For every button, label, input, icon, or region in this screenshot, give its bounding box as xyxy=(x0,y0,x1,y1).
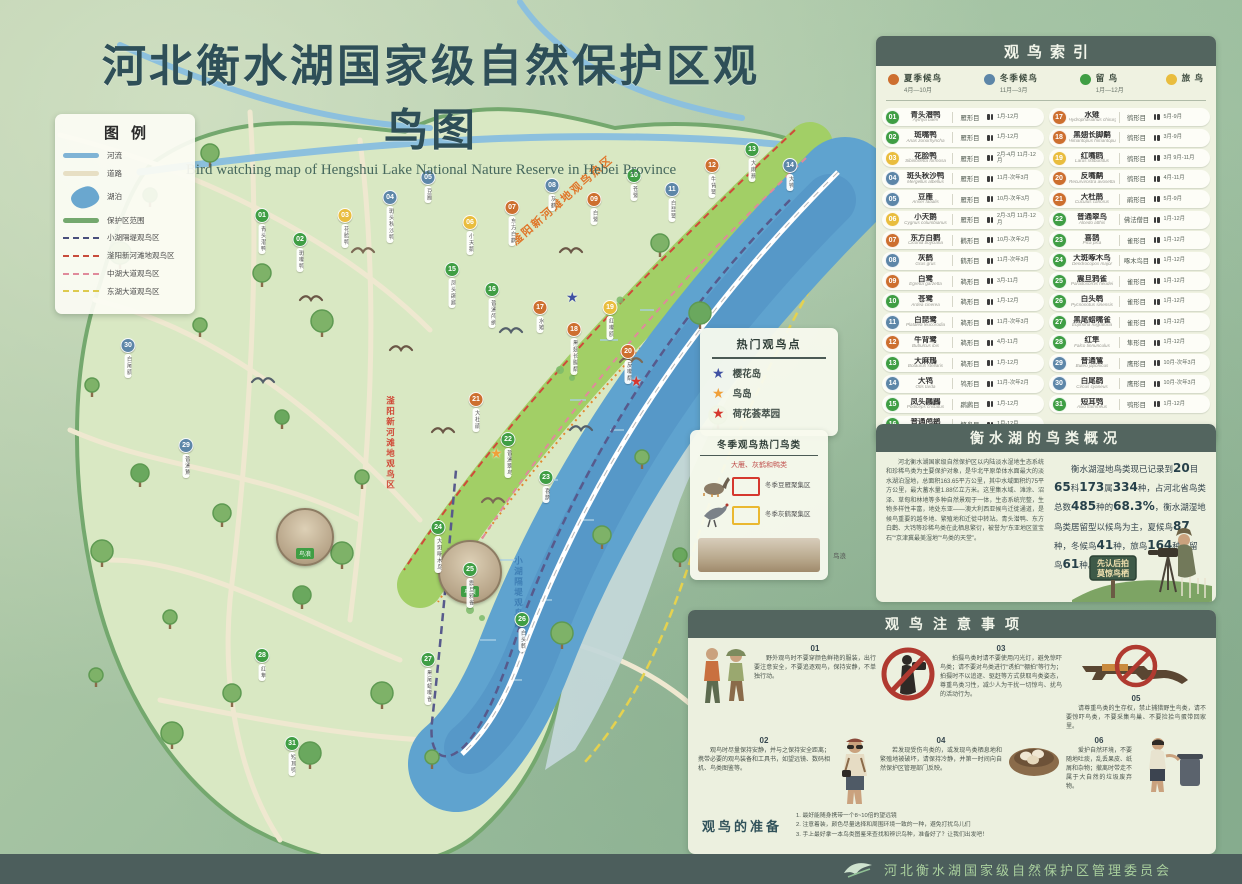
bird-index-row: 19红嘴鸥Larus ridibundus鸻形目3月 9月-11月 xyxy=(1049,149,1211,167)
crane-icon xyxy=(698,502,732,528)
bird-order: 鸻形目 xyxy=(1123,154,1151,163)
bird-months: 1月-12月 xyxy=(997,298,1041,304)
note-number: 05 xyxy=(1066,694,1206,703)
binoculars-icon xyxy=(1152,340,1162,346)
bird-months: 11月-次年3月 xyxy=(997,175,1041,181)
season-text: 留 鸟1月—12月 xyxy=(1096,72,1124,94)
binoculars-icon xyxy=(1152,381,1162,387)
season-label: 旅 鸟 xyxy=(1182,72,1204,84)
legend-line-swatch xyxy=(63,171,99,176)
binoculars-icon xyxy=(1152,299,1162,305)
hotspot-label: 荷花荟萃园 xyxy=(733,406,781,420)
winter-zone-item: 冬季灰鹤聚集区 xyxy=(698,502,820,528)
bird-name-latin: Anser fabalis xyxy=(902,200,949,205)
notes-card: 观鸟注意事项 01 野外观鸟时不要穿颜色鲜艳的服装，出行要注意安全，不要追逐观鸟… xyxy=(688,610,1216,854)
binoculars-icon xyxy=(985,360,995,366)
bird-order: 鸻形目 xyxy=(1123,133,1151,142)
bird-names: 红隼Falco tinnunculus xyxy=(1069,336,1116,348)
legend-dash-swatch xyxy=(63,290,99,292)
legend-label: 小湖隔堤观鸟区 xyxy=(107,233,160,243)
stat-number: 65 xyxy=(1054,480,1071,494)
litter-cleanup-illustration xyxy=(1136,736,1206,794)
note-item: 04 若发现受伤鸟类的，或发现鸟类栖息地和繁殖地被破坏，请保持冷静，并第一时间向… xyxy=(880,736,1062,808)
divider xyxy=(952,378,953,389)
stat-number: 334 xyxy=(1113,480,1138,494)
sign-line-2: 莫惊鸟栖 xyxy=(1096,568,1129,578)
bird-order: 鹈形目 xyxy=(956,297,984,306)
bird-number-badge: 05 xyxy=(885,192,900,207)
note-paragraph: 野外观鸟时不要穿颜色鲜艳的服装，出行要注意安全，不要追逐观鸟，保持安静，不单独行… xyxy=(754,655,876,682)
winter-zone-item: 冬季豆雁聚集区 xyxy=(698,475,820,497)
legend-dash-swatch xyxy=(63,273,99,275)
bird-name-latin: Circus cyaneus xyxy=(1069,385,1116,390)
bird-index-row: 10苍鹭Ardea cinerea鹈形目1月-12月 xyxy=(882,293,1044,311)
legend-dash-swatch xyxy=(63,237,99,239)
season-legend-item: 夏季候鸟4月—10月 xyxy=(888,72,942,94)
bird-months: 10月-次年3月 xyxy=(997,196,1041,202)
bird-name-latin: Ciconia boyciana xyxy=(902,241,949,246)
legend-item: 河流 xyxy=(63,151,187,161)
bird-order: 鹰形目 xyxy=(1123,359,1151,368)
prep-line: 1. 最好能随身携带一个8~10倍的望远镜 xyxy=(796,812,988,821)
legend-label: 湖泊 xyxy=(107,192,122,202)
binoculars-icon xyxy=(1152,155,1162,161)
binoculars-icon xyxy=(1152,319,1162,325)
bird-names: 短耳鸮Asio flammeus xyxy=(1069,398,1116,410)
bird-name-latin: Paradoxornis heudei xyxy=(1069,282,1116,287)
bird-index-column-left: 01青头潜鸭Aythya baeri雁形目1月-12月02斑嘴鸭Anas zon… xyxy=(882,108,1044,434)
overview-title: 衡水湖的鸟类概况 xyxy=(876,424,1216,452)
legend-label: 保护区范围 xyxy=(107,216,145,226)
note-number: 04 xyxy=(880,736,1002,745)
note-number: 03 xyxy=(940,644,1062,653)
divider xyxy=(952,317,953,328)
binoculars-icon xyxy=(1152,176,1162,182)
bird-months: 3月-11月 xyxy=(997,278,1041,284)
note-paragraph: 拍摄鸟类时请不要使用闪光灯，避免惊吓鸟类；请不要对鸟类进行“诱拍”“棚拍”等行为… xyxy=(940,655,1062,700)
bird-name-latin: Recurvirostra avosetta xyxy=(1069,180,1116,185)
binoculars-icon xyxy=(985,176,995,182)
legend-item: 中湖大道观鸟区 xyxy=(63,269,187,279)
legend-rows: 河流道路湖泊保护区范围小湖隔堤观鸟区滏阳新河滩地观鸟区中湖大道观鸟区东湖大道观鸟… xyxy=(63,151,187,296)
bird-names: 白尾鹞Circus cyaneus xyxy=(1069,377,1116,389)
bird-number-badge: 28 xyxy=(1052,335,1067,350)
bird-index-row: 04斑头秋沙鸭Mergellus albellus雁形目11月-次年3月 xyxy=(882,170,1044,188)
stat-text: 科 xyxy=(1071,483,1080,493)
legend-label: 滏阳新河滩地观鸟区 xyxy=(107,251,175,261)
bird-number-badge: 18 xyxy=(1052,130,1067,145)
note-item: 01 野外观鸟时不要穿颜色鲜艳的服装，出行要注意安全，不要追逐观鸟，保持安静，不… xyxy=(698,644,876,732)
bird-order: 鹈形目 xyxy=(956,318,984,327)
bird-index-row: 28红隼Falco tinnunculus隼形目1月-12月 xyxy=(1049,334,1211,352)
divider xyxy=(952,358,953,369)
bird-name-latin: Himantopus himantopus xyxy=(1069,139,1116,144)
hotspots-title: 热门观鸟点 xyxy=(710,336,828,352)
binoculars-icon xyxy=(985,258,995,264)
divider xyxy=(1119,337,1120,348)
bird-order: 鸻形目 xyxy=(1123,113,1151,122)
bird-index-row: 12牛背鹭Bubulcus ibis鹈形目4月-11月 xyxy=(882,334,1044,352)
bird-name-latin: Mergellus albellus xyxy=(902,180,949,185)
bird-months: 1月-12月 xyxy=(1164,298,1208,304)
zone-swatch xyxy=(732,506,760,525)
bird-name-latin: Alcedo atthis xyxy=(1069,221,1116,226)
bird-index-row: 01青头潜鸭Aythya baeri雁形目1月-12月 xyxy=(882,108,1044,126)
winter-subtitle: 大雁、灰鹤和鸭类 xyxy=(698,460,820,470)
bird-index-row: 30白尾鹞Circus cyaneus鹰形目10月-次年3月 xyxy=(1049,375,1211,393)
legend-line-swatch xyxy=(63,218,99,223)
bird-months: 1月-12月 xyxy=(1164,401,1208,407)
bird-names: 黑翅长脚鹬Himantopus himantopus xyxy=(1069,131,1116,143)
divider xyxy=(712,357,826,359)
bird-index-row: 27黑尾蜡嘴雀Eophona migratoria雀形目1月-12月 xyxy=(1049,313,1211,331)
bird-number-badge: 09 xyxy=(885,274,900,289)
bird-order: 鹈形目 xyxy=(956,359,984,368)
legend-line-swatch xyxy=(63,153,99,158)
bird-months: 1月-12月 xyxy=(997,360,1041,366)
bird-number-badge: 14 xyxy=(885,376,900,391)
divider xyxy=(952,399,953,410)
bird-number-badge: 30 xyxy=(1052,376,1067,391)
bird-index-row: 21大杜鹃Cuculus canorus鹃形目5月-9月 xyxy=(1049,190,1211,208)
binoculars-icon xyxy=(1152,135,1162,141)
season-text: 旅 鸟 xyxy=(1182,72,1204,85)
legend-blob-swatch xyxy=(69,183,101,210)
binoculars-icon xyxy=(985,340,995,346)
divider xyxy=(1119,235,1120,246)
divider xyxy=(1119,378,1120,389)
bird-index-list: 01青头潜鸭Aythya baeri雁形目1月-12月02斑嘴鸭Anas zon… xyxy=(876,103,1216,442)
note-number: 01 xyxy=(754,644,876,653)
legend-title: 图例 xyxy=(63,122,187,143)
legend-item: 小湖隔堤观鸟区 xyxy=(63,233,187,243)
bird-name-latin: Sibirionetta formosa xyxy=(902,159,949,164)
bird-names: 大杜鹃Cuculus canorus xyxy=(1069,193,1116,205)
binoculars-icon xyxy=(985,237,995,243)
bird-name-latin: Pica pica xyxy=(1069,241,1116,246)
footer-organization: 河北衡水湖国家级自然保护区管理委员会 xyxy=(884,860,1172,879)
prep-row: 观鸟的准备 1. 最好能随身携带一个8~10倍的望远镜2. 注意着装，颜色尽量选… xyxy=(688,808,1216,840)
divider xyxy=(1119,358,1120,369)
bird-months: 11月-次年3月 xyxy=(997,319,1041,325)
season-text: 冬季候鸟11月—3月 xyxy=(1000,72,1038,94)
photographer-illustration: 先认后拍 莫惊鸟栖 xyxy=(1072,504,1212,602)
bird-order: 鹳形目 xyxy=(956,236,984,245)
notes-title: 观鸟注意事项 xyxy=(688,610,1216,638)
star-icon: ★ xyxy=(712,386,725,400)
note-paragraph: 爱护自然环境，不要随地吐痰，乱丢果皮、纸屑和杂物；撤离时带走不属于大自然的垃圾废… xyxy=(1066,747,1132,792)
bird-index-row: 29普通鵟Buteo japonicus鹰形目10月-次年3月 xyxy=(1049,354,1211,372)
bird-index-row: 31短耳鸮Asio flammeus鸮形目1月-12月 xyxy=(1049,395,1211,413)
bird-names: 大麻鳽Botaurus stellaris xyxy=(902,357,949,369)
bird-names: 反嘴鹬Recurvirostra avosetta xyxy=(1069,172,1116,184)
bird-number-badge: 04 xyxy=(885,171,900,186)
bird-order: 隼形目 xyxy=(1123,338,1151,347)
bird-name-latin: Eophona migratoria xyxy=(1069,323,1116,328)
season-label: 留 鸟 xyxy=(1096,72,1124,84)
bird-names: 大鸨Otis tarda xyxy=(902,377,949,389)
photographer-head xyxy=(1178,534,1190,546)
hotspot-label: 鸟岛 xyxy=(733,386,752,400)
birdwatcher-kid-illustration xyxy=(834,736,876,808)
bird-name-latin: Podiceps cristatus xyxy=(902,405,949,410)
bird-order: 䴙䴘目 xyxy=(956,400,984,409)
divider xyxy=(952,255,953,266)
binoculars-icon xyxy=(985,381,995,387)
bird-number-badge: 24 xyxy=(1052,253,1067,268)
bird-names: 水雉Hydrophasianus chirurgus xyxy=(1069,111,1116,123)
bird-months: 1月-12月 xyxy=(1164,216,1208,222)
bird-number-badge: 11 xyxy=(885,315,900,330)
bird-order: 雀形目 xyxy=(1123,277,1151,286)
bird-number-badge: 02 xyxy=(885,130,900,145)
bird-order: 雁形目 xyxy=(956,154,984,163)
divider xyxy=(1119,112,1120,123)
bird-names: 牛背鹭Bubulcus ibis xyxy=(902,336,949,348)
bird-order: 雁形目 xyxy=(956,215,984,224)
bird-names: 黑尾蜡嘴雀Eophona migratoria xyxy=(1069,316,1116,328)
star-icon: ★ xyxy=(712,406,725,420)
divider xyxy=(1119,255,1120,266)
legend-label: 中湖大道观鸟区 xyxy=(107,269,160,279)
stat-text: 属 xyxy=(1104,483,1113,493)
legend-item: 东湖大道观鸟区 xyxy=(63,287,187,297)
reserve-logo-icon xyxy=(842,859,874,879)
footer: 河北衡水湖国家级自然保护区管理委员会 xyxy=(0,854,1242,884)
bird-order: 雁形目 xyxy=(956,195,984,204)
bird-index-row: 02斑嘴鸭Anas zonorhyncha雁形目1月-12月 xyxy=(882,129,1044,147)
bird-index-row: 13大麻鳽Botaurus stellaris鹈形目1月-12月 xyxy=(882,354,1044,372)
binoculars-icon xyxy=(985,319,995,325)
note-number: 06 xyxy=(1066,736,1132,745)
note-item: 06 爱护自然环境，不要随地吐痰，乱丢果皮、纸屑和杂物；撤离时带走不属于大自然的… xyxy=(1066,736,1206,808)
bird-names: 花脸鸭Sibirionetta formosa xyxy=(902,152,949,164)
bird-name-latin: Otis tarda xyxy=(902,385,949,390)
season-months: 1月—12月 xyxy=(1096,85,1124,94)
bird-names: 白鹭Egretta garzetta xyxy=(902,275,949,287)
bird-months: 1月-12月 xyxy=(997,134,1041,140)
bird-number-badge: 20 xyxy=(1052,171,1067,186)
bird-order: 雀形目 xyxy=(1123,318,1151,327)
divider xyxy=(1119,296,1120,307)
binoculars-icon xyxy=(985,155,995,161)
bird-order: 鹤形目 xyxy=(956,256,984,265)
season-dot xyxy=(888,74,899,85)
hotspot-item: ★樱花岛 xyxy=(712,366,826,380)
season-dot xyxy=(1080,74,1091,85)
bird-names: 大斑啄木鸟Dendrocopos major xyxy=(1069,254,1116,266)
bird-index-row: 03花脸鸭Sibirionetta formosa雁形目2月-4月 11月-12… xyxy=(882,149,1044,167)
prep-lines: 1. 最好能随身携带一个8~10倍的望远镜2. 注意着装，颜色尽量选择和周围环境… xyxy=(796,812,988,840)
bird-months: 1月-12月 xyxy=(997,114,1041,120)
bird-index-row: 08灰鹤Grus grus鹤形目11月-次年3月 xyxy=(882,252,1044,270)
legend-dash-swatch xyxy=(63,255,99,257)
bird-number-badge: 12 xyxy=(885,335,900,350)
legend-item: 保护区范围 xyxy=(63,216,187,226)
bird-name-latin: Egretta garzetta xyxy=(902,282,949,287)
bird-wave-photo-row: 鸟浪 xyxy=(698,533,820,572)
prep-title: 观鸟的准备 xyxy=(702,816,782,835)
bird-wave-thumbnail: 鸟浪 xyxy=(698,538,820,572)
bird-index-row: 24大斑啄木鸟Dendrocopos major啄木鸟目1月-12月 xyxy=(1049,252,1211,270)
binoculars-icon xyxy=(1152,258,1162,264)
season-dot xyxy=(984,74,995,85)
divider xyxy=(952,337,953,348)
bird-index-row: 15凤头鸊鷉Podiceps cristatus䴙䴘目1月-12月 xyxy=(882,395,1044,413)
season-legend-item: 留 鸟1月—12月 xyxy=(1080,72,1124,94)
bird-name-latin: Bubulcus ibis xyxy=(902,344,949,349)
bird-order: 鹃形目 xyxy=(1123,195,1151,204)
bird-names: 东方白鹳Ciconia boyciana xyxy=(902,234,949,246)
divider xyxy=(1119,153,1120,164)
prep-line: 3. 手上最好拿一本鸟类图鉴来查找和辨识鸟种，准备好了？让我们出发吧！ xyxy=(796,831,988,840)
bird-index-row: 09白鹭Egretta garzetta鹈形目3月-11月 xyxy=(882,272,1044,290)
bird-index-title: 观鸟索引 xyxy=(876,36,1216,66)
bird-number-badge: 19 xyxy=(1052,151,1067,166)
bird-name-latin: Asio flammeus xyxy=(1069,405,1116,410)
hotspot-item: ★荷花荟萃园 xyxy=(712,406,826,420)
binoculars-icon xyxy=(1152,278,1162,284)
bird-index-row: 14大鸨Otis tarda鸨形目11月-次年2月 xyxy=(882,375,1044,393)
bird-number-badge: 06 xyxy=(885,212,900,227)
divider xyxy=(1119,317,1120,328)
bird-number-badge: 31 xyxy=(1052,397,1067,412)
bird-names: 斑头秋沙鸭Mergellus albellus xyxy=(902,172,949,184)
bird-name-latin: Cygnus columbianus xyxy=(902,221,949,226)
binoculars-icon xyxy=(1152,237,1162,243)
season-dot xyxy=(1166,74,1177,85)
bird-names: 震旦鸦雀Paradoxornis heudei xyxy=(1069,275,1116,287)
bird-months: 11月-次年2月 xyxy=(997,380,1041,386)
bird-months: 11月-次年3月 xyxy=(997,257,1041,263)
divider xyxy=(700,455,818,456)
bird-number-badge: 13 xyxy=(885,356,900,371)
bird-names: 白琵鹭Platalea leucorodia xyxy=(902,316,949,328)
bird-months: 4月-11月 xyxy=(1164,175,1208,181)
bird-index-row: 23喜鹊Pica pica雀形目1月-12月 xyxy=(1049,231,1211,249)
binoculars-icon xyxy=(1152,196,1162,202)
bird-number-badge: 25 xyxy=(1052,274,1067,289)
bird-months: 1月-12月 xyxy=(1164,237,1208,243)
bird-names: 豆雁Anser fabalis xyxy=(902,193,949,205)
binoculars-icon xyxy=(1152,217,1162,223)
legend-item: 湖泊 xyxy=(63,187,187,208)
bird-names: 小天鹅Cygnus columbianus xyxy=(902,213,949,225)
divider xyxy=(1119,132,1120,143)
bird-name-latin: Hydrophasianus chirurgus xyxy=(1069,118,1116,123)
poster: 滏阳新河滩地观鸟热区 滏阳新河滩地观鸟区 小湖隔堤观鸟区 ★ ★ ★ 鸟浪 鸟浪… xyxy=(0,0,1242,884)
bird-order: 雁形目 xyxy=(956,113,984,122)
hotspot-item: ★鸟岛 xyxy=(712,386,826,400)
bird-names: 红嘴鸥Larus ridibundus xyxy=(1069,152,1116,164)
bird-index-row: 05豆雁Anser fabalis雁形目10月-次年3月 xyxy=(882,190,1044,208)
divider xyxy=(1119,194,1120,205)
note-paragraph: 观鸟时尽量保持安静，并与之保持安全距离；携带必要的观鸟装备和工具书，如望远镜、数… xyxy=(698,747,830,774)
bird-order: 佛法僧目 xyxy=(1123,215,1151,224)
photographer-body xyxy=(1178,544,1196,577)
divider xyxy=(952,214,953,225)
binoculars-icon xyxy=(985,135,995,141)
legend-card: 图例 河流道路湖泊保护区范围小湖隔堤观鸟区滏阳新河滩地观鸟区中湖大道观鸟区东湖大… xyxy=(55,114,195,314)
note-text-block: 01 野外观鸟时不要穿颜色鲜艳的服装，出行要注意安全，不要追逐观鸟，保持安静，不… xyxy=(754,644,876,682)
divider xyxy=(952,276,953,287)
bird-months: 10月-次年2月 xyxy=(997,237,1041,243)
bird-months: 1月-12月 xyxy=(1164,278,1208,284)
note-item: 03 拍摄鸟类时请不要使用闪光灯，避免惊吓鸟类；请不要对鸟类进行“诱拍”“棚拍”… xyxy=(880,644,1062,732)
overview-card: 衡水湖的鸟类概况 河北衡水湖国家级自然保护区以内陆淡水湿地生态系统和珍稀鸟类为主… xyxy=(876,424,1216,602)
bird-order: 鹰形目 xyxy=(1123,379,1151,388)
note-text-block: 05 请尊重鸟类的生存权，禁止捕猎野生鸟类，请不要惊吓鸟类，不要采集鸟巢、不要捡… xyxy=(1066,694,1206,732)
bird-names: 青头潜鸭Aythya baeri xyxy=(902,111,949,123)
bird-wave-caption: 鸟浪 xyxy=(833,550,846,560)
bird-months: 2月-3月 11月-12月 xyxy=(997,213,1041,225)
bird-number-badge: 07 xyxy=(885,233,900,248)
bird-index-row: 07东方白鹳Ciconia boyciana鹳形目10月-次年2月 xyxy=(882,231,1044,249)
bird-order: 雁形目 xyxy=(956,133,984,142)
bird-name-latin: Grus grus xyxy=(902,262,949,267)
binoculars-icon xyxy=(985,114,995,120)
hotspot-rows: ★樱花岛★鸟岛★荷花荟萃园 xyxy=(710,366,828,420)
goose-icon xyxy=(698,475,732,497)
bird-number-badge: 22 xyxy=(1052,212,1067,227)
divider xyxy=(886,100,1206,101)
bird-months: 10月-次年3月 xyxy=(1164,380,1208,386)
stat-text: 目 xyxy=(1190,464,1199,474)
legend-label: 道路 xyxy=(107,169,122,179)
no-hunting-icon xyxy=(1076,644,1196,690)
divider xyxy=(952,153,953,164)
notes-grid: 01 野外观鸟时不要穿颜色鲜艳的服装，出行要注意安全，不要追逐观鸟，保持安静，不… xyxy=(688,638,1216,808)
season-months: 4月—10月 xyxy=(904,85,942,94)
bird-months: 10月-次年3月 xyxy=(1164,360,1208,366)
bird-months: 5月-9月 xyxy=(1164,114,1208,120)
bird-index-column-right: 17水雉Hydrophasianus chirurgus鸻形目5月-9月18黑翅… xyxy=(1049,108,1211,434)
hikers-illustration xyxy=(698,644,750,708)
bird-name-latin: Platalea leucorodia xyxy=(902,323,949,328)
bird-number-badge: 26 xyxy=(1052,294,1067,309)
bird-name-latin: Buteo japonicus xyxy=(1069,364,1116,369)
star-icon: ★ xyxy=(712,366,725,380)
legend-label: 河流 xyxy=(107,151,122,161)
zone-swatch xyxy=(732,477,760,496)
bird-index-row: 26白头鹎Pycnonotus sinensis雀形目1月-12月 xyxy=(1049,293,1211,311)
note-paragraph: 若发现受伤鸟类的，或发现鸟类栖息地和繁殖地被破坏，请保持冷静，并第一时间向自然保… xyxy=(880,747,1002,774)
bird-number-badge: 10 xyxy=(885,294,900,309)
bird-order: 鸨形目 xyxy=(956,379,984,388)
bird-months: 5月-9月 xyxy=(1164,196,1208,202)
winter-zone-label: 冬季豆雁聚集区 xyxy=(765,482,811,490)
bird-index-row: 20反嘴鹬Recurvirostra avosetta鸻形目4月-11月 xyxy=(1049,170,1211,188)
camera-body xyxy=(1158,548,1178,557)
bird-months: 3月 9月-11月 xyxy=(1164,155,1208,161)
bird-index-row: 22普通翠鸟Alcedo atthis佛法僧目1月-12月 xyxy=(1049,211,1211,229)
bird-months: 1月-12月 xyxy=(997,401,1041,407)
bird-number-badge: 29 xyxy=(1052,356,1067,371)
camera-lens xyxy=(1148,550,1159,555)
note-item: 05 请尊重鸟类的生存权，禁止捕猎野生鸟类，请不要惊吓鸟类，不要采集鸟巢、不要捡… xyxy=(1066,644,1206,732)
bird-number-badge: 27 xyxy=(1052,315,1067,330)
divider xyxy=(952,173,953,184)
bird-name-latin: Larus ridibundus xyxy=(1069,159,1116,164)
note-paragraph: 请尊重鸟类的生存权，禁止捕猎野生鸟类，请不要惊吓鸟类，不要采集鸟巢、不要捡拾鸟蛋… xyxy=(1066,705,1206,732)
prep-line: 2. 注意着装，颜色尽量选择和周围环境一致的一种，避免打扰鸟儿们 xyxy=(796,821,988,830)
bird-order: 雁形目 xyxy=(956,174,984,183)
bird-index-row: 06小天鹅Cygnus columbianus雁形目2月-3月 11月-12月 xyxy=(882,211,1044,229)
bird-number-badge: 21 xyxy=(1052,192,1067,207)
hotspots-card: 热门观鸟点 ★樱花岛★鸟岛★荷花荟萃园 xyxy=(700,328,838,436)
stat-number: 173 xyxy=(1079,480,1104,494)
bird-index-card: 观鸟索引 夏季候鸟4月—10月冬季候鸟11月—3月留 鸟1月—12月旅 鸟 01… xyxy=(876,36,1216,442)
